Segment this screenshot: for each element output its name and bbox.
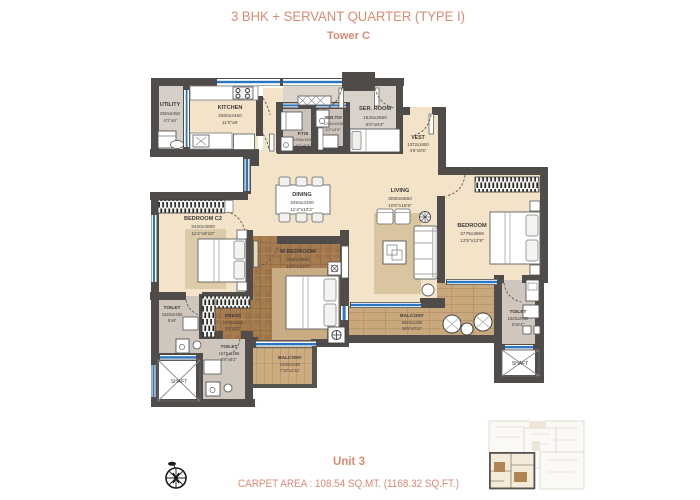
svg-text:KITCHEN: KITCHEN bbox=[218, 105, 243, 111]
svg-text:3050x5650: 3050x5650 bbox=[388, 196, 412, 202]
svg-text:1520x2450: 1520x2450 bbox=[162, 312, 183, 317]
svg-text:BALCONY: BALCONY bbox=[400, 313, 425, 319]
svg-text:3 BHK + SERVANT QUARTER (TYPE: 3 BHK + SERVANT QUARTER (TYPE I) bbox=[231, 9, 465, 24]
svg-text:SHAFT: SHAFT bbox=[171, 379, 187, 385]
svg-text:SHAFT: SHAFT bbox=[512, 361, 528, 367]
svg-text:1255x1900: 1255x1900 bbox=[293, 137, 314, 142]
svg-text:11'4"x10'2": 11'4"x10'2" bbox=[290, 207, 314, 213]
svg-text:250x2450: 250x2450 bbox=[160, 111, 181, 116]
svg-text:7'10"x4'11": 7'10"x4'11" bbox=[280, 368, 301, 373]
svg-text:4'2"x3'3": 4'2"x3'3" bbox=[325, 127, 341, 132]
svg-text:TOILET: TOILET bbox=[164, 305, 181, 311]
svg-text:5'6"x8'2": 5'6"x8'2" bbox=[221, 357, 237, 362]
svg-text:5620x1200: 5620x1200 bbox=[402, 320, 423, 325]
svg-text:4'1"x8': 4'1"x8' bbox=[163, 118, 176, 123]
svg-text:3453x3100: 3453x3100 bbox=[290, 200, 314, 206]
svg-text:2400x1500: 2400x1500 bbox=[280, 362, 301, 367]
svg-text:5'x8'4": 5'x8'4" bbox=[512, 322, 525, 327]
svg-text:Unit 3: Unit 3 bbox=[333, 456, 365, 468]
svg-text:1525x2550: 1525x2550 bbox=[508, 316, 529, 321]
svg-text:P.TOI: P.TOI bbox=[298, 131, 309, 136]
svg-text:TOILET: TOILET bbox=[221, 344, 238, 350]
svg-text:CARPET AREA : 108.54 SQ.MT. (1: CARPET AREA : 108.54 SQ.MT. (1168.32 SQ.… bbox=[238, 478, 459, 490]
svg-text:BEDROOM: BEDROOM bbox=[457, 223, 487, 229]
svg-text:SER. ROOM: SER. ROOM bbox=[359, 106, 391, 112]
svg-text:M BEDROOM: M BEDROOM bbox=[280, 249, 316, 255]
svg-text:DRESS: DRESS bbox=[225, 313, 242, 319]
svg-text:10'0"x13'0": 10'0"x13'0" bbox=[286, 264, 310, 270]
svg-text:18'5"x3'11": 18'5"x3'11" bbox=[402, 326, 423, 331]
svg-text:1625x2560: 1625x2560 bbox=[363, 115, 387, 121]
svg-text:SER.TOI: SER.TOI bbox=[324, 115, 342, 120]
svg-text:11'0"x8': 11'0"x8' bbox=[222, 120, 238, 126]
svg-text:BALCONY: BALCONY bbox=[278, 355, 303, 361]
svg-text:1372x1650: 1372x1650 bbox=[407, 142, 429, 147]
svg-text:3300x2450: 3300x2450 bbox=[218, 113, 242, 119]
svg-text:Tower C: Tower C bbox=[327, 30, 370, 42]
svg-text:TOILET: TOILET bbox=[510, 309, 527, 315]
svg-text:1290x1005: 1290x1005 bbox=[323, 121, 344, 126]
svg-text:3775x3969: 3775x3969 bbox=[460, 231, 484, 237]
svg-text:10'0"x18'6": 10'0"x18'6" bbox=[388, 203, 412, 209]
svg-text:11'2"x9'10": 11'2"x9'10" bbox=[191, 231, 215, 237]
svg-text:4'1"x6'3": 4'1"x6'3" bbox=[295, 143, 311, 148]
svg-text:6'0"x8'4": 6'0"x8'4" bbox=[366, 122, 385, 128]
svg-text:LIVING: LIVING bbox=[391, 188, 410, 194]
svg-text:3050x3960: 3050x3960 bbox=[286, 257, 310, 263]
svg-text:5'6"x5'0": 5'6"x5'0" bbox=[225, 326, 241, 331]
svg-text:4'6"x5'5": 4'6"x5'5" bbox=[410, 148, 427, 153]
svg-text:UTILITY: UTILITY bbox=[160, 102, 181, 108]
svg-text:5'x8': 5'x8' bbox=[168, 318, 177, 323]
svg-text:3420x3000: 3420x3000 bbox=[191, 224, 215, 230]
svg-text:BEDROOM C2: BEDROOM C2 bbox=[184, 216, 222, 222]
svg-text:DINING: DINING bbox=[292, 192, 312, 198]
svg-text:12'5"x12'9": 12'5"x12'9" bbox=[460, 238, 484, 244]
svg-text:VEST: VEST bbox=[411, 135, 425, 141]
svg-text:1675x1525: 1675x1525 bbox=[223, 320, 244, 325]
svg-text:1675x2488: 1675x2488 bbox=[219, 351, 240, 356]
